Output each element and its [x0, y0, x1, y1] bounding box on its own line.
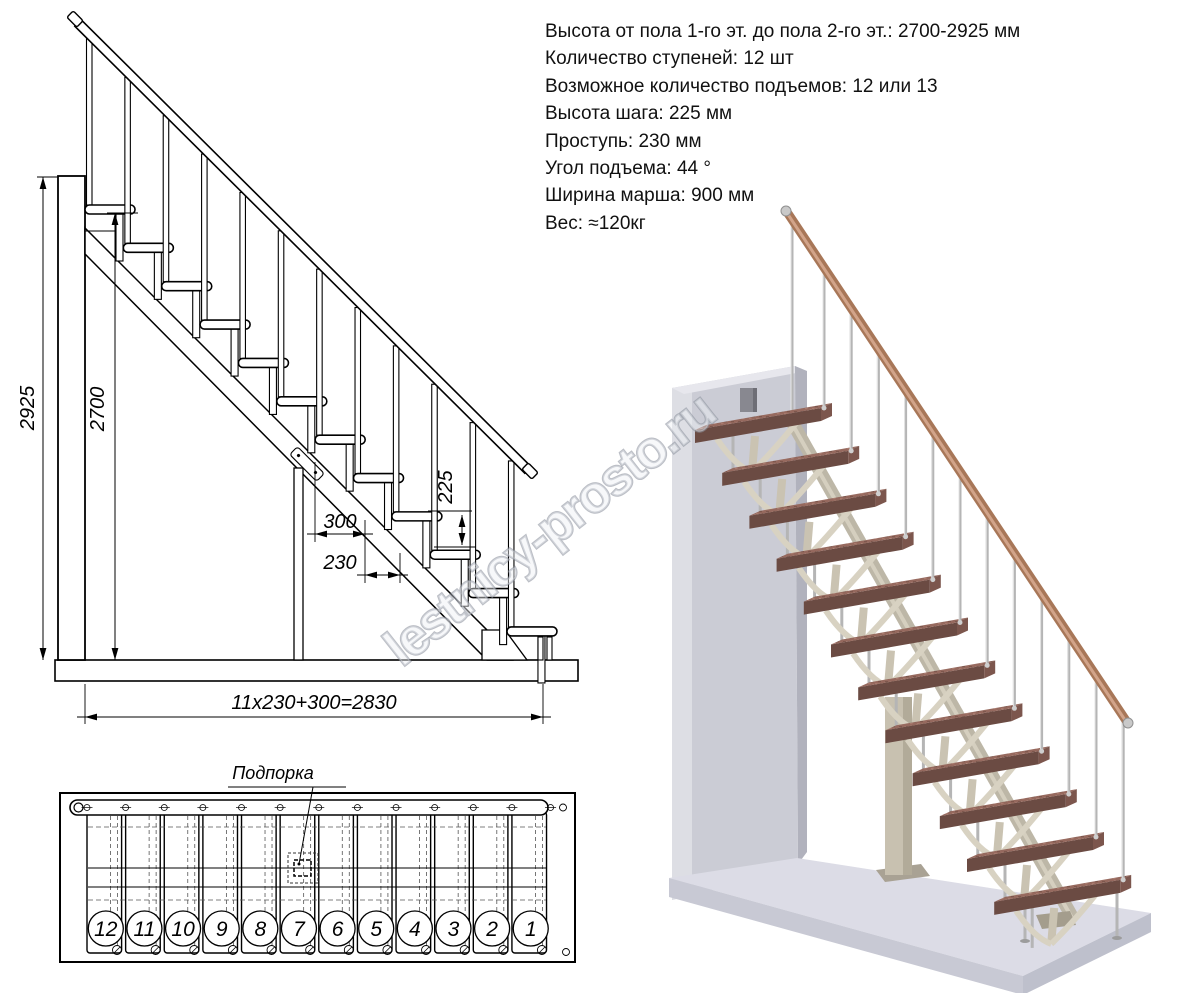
- step-number: 10: [171, 918, 195, 941]
- plan-view-drawing: Подпорка 12 11 10 9 8 7 6 5 4 3 2 1: [0, 750, 600, 993]
- page: 2925 2700 300 230 225 11x230+300=2830 Вы…: [0, 0, 1191, 993]
- spec-list: Высота от пола 1-го эт. до пола 2-го эт.…: [545, 18, 1020, 237]
- dim-going: 230: [322, 552, 356, 574]
- step-number: 7: [293, 918, 306, 941]
- step-number: 4: [409, 918, 421, 941]
- spec-line: Высота шага: 225 мм: [545, 100, 1020, 127]
- spec-line: Проступь: 230 мм: [545, 128, 1020, 155]
- step-number: 2: [485, 918, 498, 941]
- staircase-3d-render: [640, 180, 1191, 993]
- spec-line: Угол подъема: 44 °: [545, 155, 1020, 182]
- elevation-geometry: [37, 11, 578, 724]
- step-number: 11: [133, 918, 155, 941]
- step-number: 12: [94, 918, 118, 941]
- spec-line: Ширина марша: 900 мм: [545, 182, 1020, 209]
- dim-length-formula: 11x230+300=2830: [231, 692, 396, 714]
- dim-total-height: 2925: [17, 385, 39, 431]
- dim-tread-depth: 300: [323, 511, 356, 533]
- render-geometry: [669, 206, 1151, 993]
- support-label: Подпорка: [232, 763, 313, 783]
- step-number: 5: [370, 918, 382, 941]
- step-number: 3: [448, 918, 460, 941]
- dim-rise: 225: [435, 469, 457, 504]
- spec-line: Количество ступеней: 12 шт: [545, 45, 1020, 72]
- elevation-drawing: 2925 2700 300 230 225 11x230+300=2830: [0, 0, 600, 750]
- dim-floor-height: 2700: [87, 387, 109, 433]
- step-number: 9: [216, 918, 228, 941]
- spec-line: Высота от пола 1-го эт. до пола 2-го эт.…: [545, 18, 1020, 45]
- spec-line: Возможное количество подъемов: 12 или 13: [545, 73, 1020, 100]
- step-number: 6: [332, 918, 344, 941]
- step-number: 8: [254, 918, 266, 941]
- step-number: 1: [525, 918, 537, 941]
- spec-line: Вес: ≈120кг: [545, 210, 1020, 237]
